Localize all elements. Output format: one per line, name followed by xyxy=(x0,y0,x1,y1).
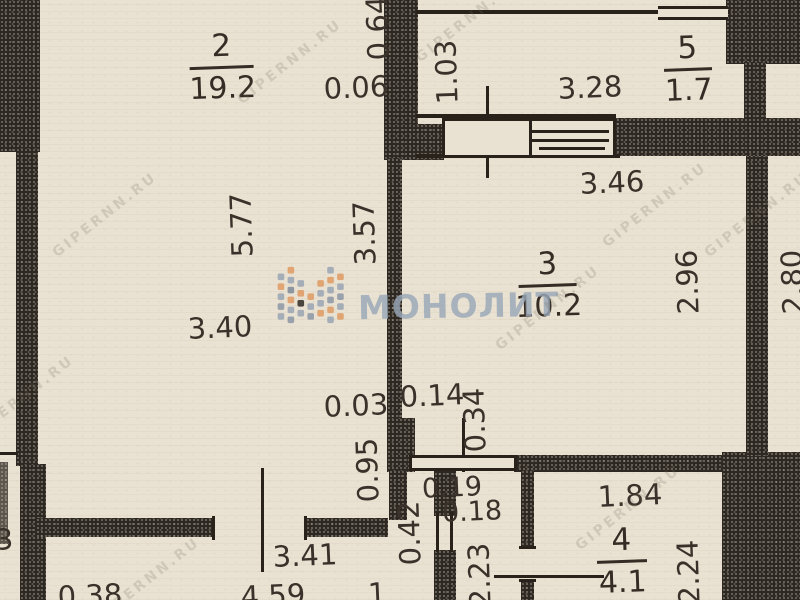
room-area: 4.1 xyxy=(597,566,648,599)
dimension-label-0-03: 0.03 xyxy=(323,390,389,422)
dimension-line xyxy=(261,468,264,572)
stairs-symbol xyxy=(442,118,616,158)
dimension-label-3-57: 3.57 xyxy=(349,200,380,266)
watermark-tile: GIPERNN.RU xyxy=(0,352,77,444)
room-number: 5 xyxy=(663,31,712,65)
wall-segment xyxy=(726,0,800,64)
wall-segment xyxy=(521,470,534,548)
wall-segment xyxy=(746,150,768,456)
dimension-label-4-59: 4.59 xyxy=(240,580,306,600)
stairs-step-line xyxy=(539,147,605,150)
door-opening-jamb xyxy=(212,516,215,540)
dimension-label-3-40: 3.40 xyxy=(187,312,253,344)
window-symbol xyxy=(658,6,728,20)
dimension-label-0-95: 0.95 xyxy=(352,437,383,503)
dimension-label-0-42: 0.42 xyxy=(394,500,425,566)
wall-segment xyxy=(434,550,456,600)
dimension-label-0-64: 0.64 xyxy=(362,0,393,61)
wall-segment xyxy=(36,518,214,537)
floor-plan-scan: 2 19.2 5 1.7 3 10.2 4 4.1 0.64 0.06 1.03… xyxy=(0,0,800,600)
fraction-bar xyxy=(597,559,647,564)
wall-segment xyxy=(306,518,388,537)
wall-segment xyxy=(521,582,534,600)
dimension-label-2-24: 2.24 xyxy=(673,539,704,600)
partition-outline xyxy=(409,455,517,471)
wall-segment xyxy=(0,0,40,152)
dimension-label-0-14: 0.14 xyxy=(399,380,465,412)
stairs-divider xyxy=(529,121,532,155)
dimension-label-3-partial: 3 xyxy=(0,525,14,555)
dimension-label-0-34: 0.34 xyxy=(459,387,490,453)
room-area: 1.7 xyxy=(664,74,713,107)
room-number: 2 xyxy=(187,29,255,64)
dimension-label-3-28: 3.28 xyxy=(557,72,623,104)
monolit-logo-icon xyxy=(276,260,352,330)
wall-line xyxy=(0,452,18,455)
door-opening-jamb xyxy=(519,546,536,549)
dimension-label-5-77: 5.77 xyxy=(226,192,257,258)
wall-segment xyxy=(612,118,800,156)
watermark-tile: GIPERNN.RU xyxy=(50,169,161,261)
dimension-label-3-46: 3.46 xyxy=(579,167,645,199)
dimension-label-3-41: 3.41 xyxy=(272,540,338,572)
dimension-line xyxy=(494,575,604,578)
fraction-bar xyxy=(190,64,254,69)
door-opening-jamb xyxy=(436,512,439,552)
room-number: 3 xyxy=(513,247,581,282)
wall-segment xyxy=(514,455,724,472)
dimension-label-1: 1 xyxy=(367,579,387,600)
dimension-label-0-18: 0.18 xyxy=(441,497,502,527)
wall-segment xyxy=(722,452,800,600)
stairs-step-line xyxy=(532,139,609,142)
dimension-label-2-23: 2.23 xyxy=(464,542,495,600)
stairs-step-line xyxy=(532,130,609,133)
room-label-5: 5 1.7 xyxy=(663,31,714,107)
dimension-label-2-96: 2.96 xyxy=(672,249,703,315)
wall-segment xyxy=(16,148,38,466)
dimension-label-0-06: 0.06 xyxy=(323,72,389,104)
door-opening-jamb xyxy=(519,579,536,582)
dimension-label-2-80: 2.80 xyxy=(777,249,800,315)
fraction-bar xyxy=(664,67,712,72)
door-opening-jamb xyxy=(304,516,307,540)
wall-segment xyxy=(744,62,766,120)
